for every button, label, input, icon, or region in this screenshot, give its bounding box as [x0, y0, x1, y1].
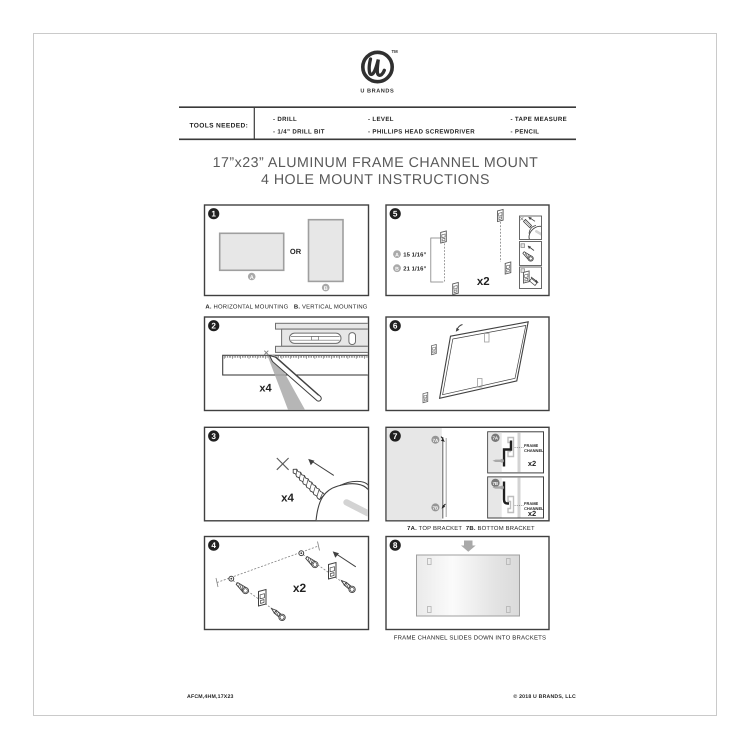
svg-text:A: A	[395, 253, 399, 259]
svg-text:8: 8	[393, 541, 398, 550]
svg-text:- PHILLIPS HEAD SCREWDRIVER: - PHILLIPS HEAD SCREWDRIVER	[368, 128, 475, 135]
svg-text:B: B	[324, 286, 328, 292]
svg-text:7: 7	[393, 432, 398, 441]
svg-text:21 1/16”: 21 1/16”	[403, 266, 426, 273]
svg-text:© 2018 U BRANDS, LLC: © 2018 U BRANDS, LLC	[513, 694, 576, 700]
svg-text:7B: 7B	[433, 506, 440, 511]
svg-text:1: 1	[211, 210, 216, 219]
svg-text:4 HOLE MOUNT INSTRUCTIONS: 4 HOLE MOUNT INSTRUCTIONS	[261, 172, 490, 188]
svg-text:OR: OR	[290, 247, 302, 256]
svg-text:x4: x4	[281, 493, 294, 505]
svg-text:- LEVEL: - LEVEL	[368, 116, 394, 123]
svg-text:B: B	[395, 267, 399, 273]
svg-text:x2: x2	[528, 459, 536, 468]
svg-text:7B: 7B	[492, 481, 498, 486]
svg-text:- PENCIL: - PENCIL	[511, 128, 540, 135]
svg-text:17”x23” ALUMINUM FRAME CHANNEL: 17”x23” ALUMINUM FRAME CHANNEL MOUNT	[213, 155, 539, 171]
svg-text:2: 2	[211, 322, 216, 331]
svg-text:A. HORIZONTAL MOUNTING B. VE: A. HORIZONTAL MOUNTING B. VERTICAL MOUNT…	[205, 304, 367, 311]
svg-text:- 1/4” DRILL BIT: - 1/4” DRILL BIT	[273, 128, 325, 135]
svg-text:7A. TOP BRACKET 7B. BOTTOM BR: 7A. TOP BRACKET 7B. BOTTOM BRACKET	[407, 525, 535, 532]
svg-text:TM: TM	[392, 49, 399, 54]
svg-text:- DRILL: - DRILL	[273, 116, 297, 123]
svg-text:x2: x2	[293, 581, 307, 595]
svg-text:x2: x2	[477, 276, 490, 288]
svg-text:3: 3	[211, 432, 216, 441]
svg-text:CHANNEL: CHANNEL	[524, 448, 544, 453]
svg-text:- TAPE MEASURE: - TAPE MEASURE	[511, 116, 568, 123]
svg-text:FRAME CHANNEL SLIDES DOWN INTO: FRAME CHANNEL SLIDES DOWN INTO BRACKETS	[394, 635, 547, 642]
svg-text:AFCM,4HM,17X23: AFCM,4HM,17X23	[187, 694, 234, 700]
svg-text:4: 4	[211, 541, 216, 550]
svg-text:6: 6	[393, 322, 398, 331]
svg-text:7A: 7A	[433, 438, 440, 443]
svg-text:7A: 7A	[492, 436, 498, 441]
svg-text:15 1/16”: 15 1/16”	[403, 251, 426, 258]
svg-text:x2: x2	[528, 509, 536, 518]
svg-text:A: A	[250, 275, 254, 281]
svg-text:U BRANDS: U BRANDS	[360, 89, 394, 95]
svg-text:x4: x4	[259, 383, 272, 395]
svg-text:TOOLS NEEDED:: TOOLS NEEDED:	[190, 122, 249, 129]
svg-text:5: 5	[393, 210, 398, 219]
